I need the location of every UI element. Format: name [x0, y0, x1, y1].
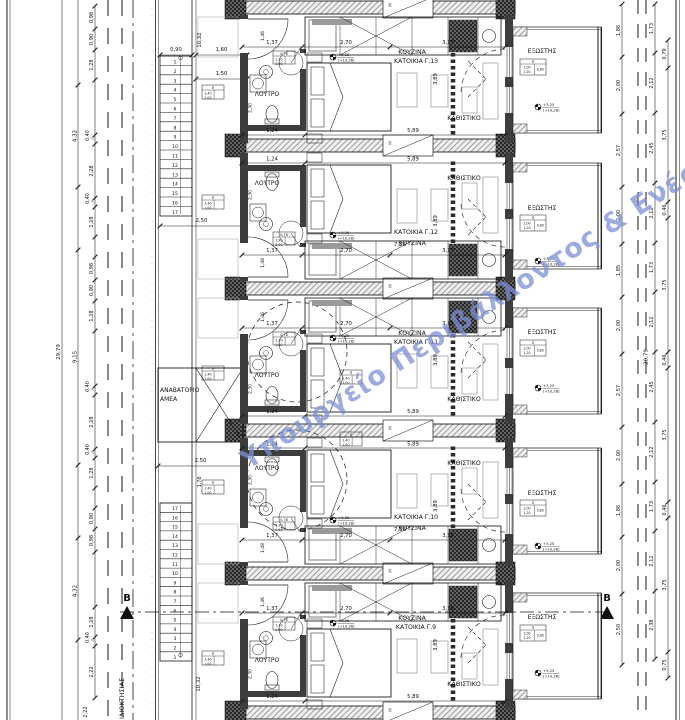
section-marker-label-left: B	[123, 593, 131, 604]
drawing-shape	[330, 450, 343, 484]
dim-label: 0,90	[275, 343, 282, 347]
dim-label: 2,30	[248, 190, 254, 200]
room-label-bath: ΛΟΥΤΡΟ	[255, 180, 280, 187]
floor-plan: 29,799,154,324,3229,790,980,901,280,402,…	[0, 0, 685, 720]
room-label-kitchen: ΚΟΥΖΙΝΑ	[398, 525, 426, 532]
kitchen-sink	[483, 254, 496, 267]
wall-right	[505, 153, 513, 281]
dim-label: 2,57	[616, 385, 622, 396]
dim-label: 1,30	[275, 58, 282, 62]
dim-label: Π	[532, 626, 535, 630]
dim-label: 2,70	[340, 606, 352, 612]
dim-label: 1,00	[204, 662, 211, 666]
dim-label: 1,20	[523, 70, 530, 74]
dim-label: 2,38	[649, 619, 655, 630]
dim-label: 2,00	[616, 320, 622, 331]
dim-label: Π	[532, 60, 535, 64]
drawing-shape	[330, 165, 343, 199]
level-value: +3,25	[543, 103, 555, 107]
stair-number: 8	[174, 125, 177, 131]
drawing-shape	[264, 70, 269, 75]
coffee-table	[462, 368, 477, 394]
nightstand	[307, 619, 322, 628]
drawing-shape	[253, 492, 264, 503]
dim-label: 0,78	[280, 333, 288, 337]
dim-label: 0,90	[275, 62, 282, 66]
drawing-shape	[513, 124, 527, 133]
dim-label: 5,89	[407, 157, 419, 163]
level-value: +3,25	[338, 334, 350, 338]
entry-landing	[198, 583, 238, 623]
dim-label: 0,78	[280, 52, 288, 56]
drawing-shape	[538, 388, 541, 391]
toilet	[266, 106, 278, 123]
stair-number: 13	[172, 543, 178, 549]
level-abs-value: (+10,28)	[543, 390, 560, 394]
lintel-label: Π	[388, 284, 391, 289]
drawing-shape	[513, 405, 527, 414]
room-label-kitchen: ΚΟΥΖΙΝΑ	[398, 49, 426, 56]
drawing-shape	[330, 484, 343, 518]
toilet	[266, 672, 278, 689]
bed	[307, 629, 391, 697]
drawing-shape	[538, 546, 541, 549]
drawing-shape	[535, 104, 538, 107]
pillow	[311, 201, 324, 229]
party-wall	[230, 706, 515, 719]
room-label-balcony: ΕΞΩΣΤΗΣ	[528, 205, 557, 212]
drawing-shape	[265, 119, 279, 124]
wall-right	[505, 15, 513, 143]
dim-label: 1,20	[523, 636, 530, 640]
dim-label: 1,85	[616, 265, 622, 276]
pillow	[311, 665, 324, 693]
dim-label: 0,80	[537, 509, 544, 513]
dim-label: 5,89	[407, 694, 419, 700]
dim-label: 3,75	[662, 279, 668, 290]
dim-label: 1,40	[342, 439, 349, 443]
stair-number: 9	[174, 580, 177, 586]
lintel-label: Π	[388, 3, 391, 8]
stair-number: 2	[174, 69, 177, 75]
lintel-label: Π	[388, 708, 391, 713]
stair-number: 11	[172, 154, 178, 160]
drawing-shape	[264, 351, 269, 356]
level-abs-value: (+10,28)	[543, 548, 560, 552]
lift-label-line1: ΑΝΑΒΑΤΟΡΙΟ	[160, 387, 200, 394]
kitchen-sink	[483, 596, 496, 609]
dim-label: 2,57	[616, 145, 622, 156]
dim-label: 1,86	[616, 25, 622, 36]
stair-number: 16	[172, 515, 178, 521]
drawing-shape	[535, 543, 538, 546]
coffee-table	[462, 87, 477, 113]
lintel-label: Π	[388, 426, 391, 431]
level-value: +3,25	[543, 384, 555, 388]
stair-number: 15	[172, 191, 178, 197]
stair-number: 11	[172, 562, 178, 568]
drawing-shape	[91, 138, 94, 140]
stair-number: 10	[172, 571, 178, 577]
dim-label: 2,30	[248, 384, 254, 394]
dim-label: 5,89	[407, 409, 419, 415]
bed	[307, 63, 391, 131]
coffee-table	[462, 183, 477, 209]
stair-number: 7	[174, 599, 177, 605]
dim-label: 2,70	[340, 40, 352, 46]
balcony	[513, 593, 601, 699]
drawing-shape	[330, 54, 333, 57]
dim-label: 1,73	[649, 23, 655, 34]
drawing-shape	[91, 201, 94, 203]
level-abs-value: (+10,28)	[543, 109, 560, 113]
dim-label: 1,28	[89, 310, 95, 321]
stair-number: 5	[174, 97, 177, 103]
drawing-shape	[333, 520, 336, 523]
stair-number: 3	[174, 78, 177, 84]
level-value: +3,25	[338, 231, 350, 235]
dim-label: 1,50	[216, 71, 228, 77]
kitchen-sink	[483, 539, 496, 552]
dim-label: 0,75	[662, 659, 668, 670]
dim-label: 1,30	[275, 624, 282, 628]
dim-label: 0,90	[275, 628, 282, 632]
nightstand	[307, 153, 322, 162]
drawing-shape	[513, 690, 527, 699]
drawing-shape	[330, 663, 343, 697]
balcony	[513, 308, 601, 414]
toilet	[266, 387, 278, 404]
drawing-shape	[513, 545, 527, 554]
drawing-shape	[240, 528, 248, 562]
dim-label: 1,20	[523, 351, 530, 355]
wall-right	[505, 581, 513, 709]
stair-number: 9	[174, 135, 177, 141]
dim-label: 2,50	[195, 458, 207, 464]
dim-label: 10,32	[196, 676, 202, 691]
drawing-shape	[248, 165, 306, 171]
stair-number: 16	[172, 201, 178, 207]
drawing-shape	[535, 385, 538, 388]
dim-label: 2,00	[523, 632, 530, 636]
dim-label: 2,50	[196, 218, 208, 224]
dim-label: Π	[212, 367, 215, 371]
dim-label: 1,40	[204, 487, 211, 491]
lintel-label: Π	[388, 569, 391, 574]
sofa	[483, 629, 498, 685]
level-value: +3,25	[543, 669, 555, 673]
dim-label: 1,20	[523, 226, 530, 230]
dim-label: 9,15	[73, 350, 79, 363]
level-abs-value: (+10,28)	[338, 237, 355, 241]
bed	[307, 165, 391, 233]
level-value: +3,25	[338, 619, 350, 623]
dim-label: 2,12	[649, 77, 655, 88]
dim-label: 1,73	[649, 262, 655, 273]
drawing-shape	[513, 27, 527, 36]
dim-label: 2,30	[248, 475, 254, 485]
entry-landing	[198, 524, 238, 564]
dim-label: 0,40	[85, 444, 91, 455]
dim-label: 1,46	[260, 312, 266, 322]
dim-label: 2,70	[340, 248, 352, 254]
sofa	[483, 344, 498, 400]
drawing-shape	[253, 644, 264, 655]
level-abs-value: (+10,28)	[338, 340, 355, 344]
balcony	[513, 448, 601, 554]
drawing-shape	[265, 685, 279, 690]
dim-label: 0,80	[537, 68, 544, 72]
drawing-shape	[330, 620, 333, 623]
dim-label: 0,90	[89, 285, 95, 296]
dim-label: 2,00	[616, 80, 622, 91]
drawing-shape	[513, 593, 527, 602]
dim-label: 1,40	[204, 373, 211, 377]
dim-label: 3,19	[442, 533, 454, 539]
dim-label: 3,19	[442, 606, 454, 612]
room-label-living: ΚΑΘΙΣΤΙΚΟ	[447, 115, 481, 122]
stair-number: 12	[172, 553, 178, 559]
dim-label: 2,70	[340, 321, 352, 327]
drawing-shape	[264, 636, 269, 641]
table	[397, 189, 417, 223]
lift-label-line2: ΑΜΕΑ	[160, 396, 178, 403]
dim-label: 2,00	[523, 347, 530, 351]
dim-label: 1,46	[260, 597, 266, 607]
dim-label: Π	[212, 86, 215, 90]
party-wall	[230, 567, 515, 580]
unit-label: ΚΑΤΟΙΚΙΑ Γ.13	[394, 58, 438, 65]
drawing-shape	[330, 199, 343, 233]
dim-label: 0,78	[280, 518, 288, 522]
level-value: +3,25	[338, 53, 350, 57]
dim-label: 0,90	[170, 47, 182, 53]
dim-label: 0,90	[275, 528, 282, 532]
unit-label: ΚΑΤΟΙΚΙΑ Γ.12	[394, 229, 438, 236]
dim-label: 1,30	[275, 339, 282, 343]
dim-label: 0,80	[537, 634, 544, 638]
drawing-shape	[333, 235, 336, 238]
stair-number: 5	[174, 618, 177, 624]
dim-label: 3,89	[433, 639, 439, 651]
dim-label: 1,37	[266, 606, 278, 612]
dim-label: 0,46	[662, 354, 668, 365]
stair-number: 17	[172, 210, 178, 216]
dim-label: 3,75	[662, 579, 668, 590]
stair-number: 8	[174, 590, 177, 596]
dim-label: 1,24	[266, 157, 278, 163]
dim-label: 1,40	[204, 202, 211, 206]
drawing-shape	[513, 163, 527, 172]
dim-label: 4,32	[73, 130, 79, 142]
pillow	[311, 99, 324, 127]
lintel-label: Π	[388, 141, 391, 146]
dim-label: 1,48	[260, 258, 266, 268]
pillow	[311, 454, 324, 482]
drawing-shape	[330, 97, 343, 131]
dim-label: 1,37	[266, 248, 278, 254]
dim-label: 1,73	[649, 501, 655, 512]
dim-label: 1,00	[204, 377, 211, 381]
party-wall	[230, 139, 515, 152]
drawing-shape	[513, 448, 527, 457]
dim-label: 1,46	[260, 31, 266, 41]
table	[397, 474, 417, 508]
overall-dim: 29,79	[644, 349, 650, 365]
dim-label: 1,20	[523, 511, 530, 515]
dim-label: 0,78	[280, 618, 288, 622]
dim-label: 3,19	[442, 248, 454, 254]
dim-label: 0,98	[89, 535, 95, 546]
dim-label: Π	[532, 341, 535, 345]
dim-label: 2,12	[649, 446, 655, 457]
dim-label: 1,00	[204, 206, 211, 210]
drawing-shape	[91, 389, 94, 391]
sofa	[483, 63, 498, 119]
dim-label: 0,80	[537, 349, 544, 353]
drawing-shape	[513, 308, 527, 317]
dim-label: 1,00	[342, 443, 349, 447]
dim-label: Π	[212, 481, 215, 485]
room-label-balcony: ΕΞΩΣΤΗΣ	[528, 614, 557, 621]
dim-label: 2,28	[89, 165, 95, 176]
stair-number: 13	[172, 172, 178, 178]
room-label-balcony: ΕΞΩΣΤΗΣ	[528, 490, 557, 497]
kitchen-sink	[483, 30, 496, 43]
dim-label: 1,30	[275, 239, 282, 243]
drawing-shape	[538, 107, 541, 110]
room-label-balcony: ΕΞΩΣΤΗΣ	[528, 329, 557, 336]
dim-label: 5,89	[407, 442, 419, 448]
dim-label: 0,79	[662, 48, 668, 59]
wall-right	[505, 296, 513, 424]
drawing-shape	[330, 629, 343, 663]
dim-label: 1,37	[266, 40, 278, 46]
room-label-bath: ΛΟΥΤΡΟ	[255, 372, 280, 379]
drawing-shape	[253, 78, 264, 89]
section-marker-label-right: B	[603, 593, 611, 604]
dim-label: 1,40	[204, 92, 211, 96]
dim-label: 0,40	[85, 381, 91, 392]
dim-label: 2,70	[340, 533, 352, 539]
dim-label: 1,24	[266, 694, 278, 700]
stair-number: 12	[172, 163, 178, 169]
dim-label: 0,40	[85, 632, 91, 643]
room-label-balcony: ΕΞΩΣΤΗΣ	[528, 48, 557, 55]
stair-number: 10	[172, 144, 178, 150]
level-value: +3,25	[338, 516, 350, 520]
pillow	[311, 348, 324, 376]
drawing-shape	[240, 243, 248, 277]
drawing-shape	[330, 335, 333, 338]
dim-label: 0,90	[89, 34, 95, 45]
drawing-shape	[330, 344, 343, 378]
floor-plan-sheet: { "watermark": {"text": "Υπουργείο Περιβ…	[0, 0, 685, 720]
dim-label: 2,12	[649, 555, 655, 566]
overall-dim: 29,79	[56, 344, 62, 360]
dim-label: 2,28	[89, 416, 95, 427]
dim-label: 1,86	[616, 505, 622, 516]
stair-number: 1	[174, 60, 177, 66]
dim-label: 3,19	[442, 40, 454, 46]
drawing-shape	[333, 623, 336, 626]
dim-label: 0,98	[89, 263, 95, 274]
dim-label: 1,28	[89, 59, 95, 70]
room-label-bath: ΛΟΥΤΡΟ	[255, 657, 280, 664]
dim-label: 2,22	[83, 706, 89, 717]
dim-label: Π	[212, 652, 215, 656]
section-arrow-right	[600, 606, 614, 619]
dim-label: 3,89	[433, 500, 439, 512]
stair-number: 6	[174, 608, 177, 614]
stair-number: 2	[174, 646, 177, 652]
stair-number: 1	[174, 655, 177, 661]
level-value: +3,25	[543, 542, 555, 546]
dim-label: 3,89	[433, 73, 439, 85]
level-abs-value: (+10,28)	[338, 522, 355, 526]
pillow	[311, 633, 324, 661]
room-label-living: ΚΑΘΙΣΤΙΚΟ	[447, 681, 481, 688]
stair-number: 14	[172, 182, 178, 188]
dim-label: Π	[532, 501, 535, 505]
table	[397, 73, 417, 107]
drawing-shape	[265, 172, 279, 177]
stair-number: 7	[174, 116, 177, 122]
dim-label: 2,30	[248, 669, 254, 679]
drawing-shape	[330, 63, 343, 97]
dim-label: 1,24	[266, 409, 278, 415]
section-arrow-left	[120, 606, 134, 619]
dim-label: 2,45	[649, 142, 655, 153]
dim-label: 3,75	[662, 129, 668, 140]
nightstand	[307, 53, 322, 62]
nightstand	[307, 519, 322, 528]
dim-label: 1,28	[89, 616, 95, 627]
bed	[307, 450, 391, 518]
dim-label: 1,37	[266, 533, 278, 539]
dim-label: 1,30	[275, 524, 282, 528]
dim-label: 3,75	[662, 429, 668, 440]
unit-label: ΚΑΤΟΙΚΙΑ Γ.9	[396, 624, 436, 631]
dim-label: 2,12	[649, 316, 655, 327]
drawing-shape	[333, 57, 336, 60]
dim-label: 0,78	[280, 233, 288, 237]
dim-label: Π	[532, 216, 535, 220]
drawing-shape	[91, 640, 94, 642]
dim-label: 1,48	[260, 543, 266, 553]
dim-label: 2,00	[616, 450, 622, 461]
drawing-shape	[265, 400, 279, 405]
dim-label: 1,00	[204, 96, 211, 100]
level-abs-value: (+10,28)	[543, 675, 560, 679]
drawing-shape	[253, 207, 264, 218]
dim-label: 1,24	[266, 128, 278, 134]
nightstand	[307, 438, 322, 447]
nightstand	[307, 334, 322, 343]
pillow	[311, 486, 324, 514]
dim-label: 4,32	[73, 585, 79, 597]
room-label-living: ΚΑΘΙΣΤΙΚΟ	[447, 175, 481, 182]
dim-label: 2,30	[248, 103, 254, 113]
dim-label: 2,00	[523, 222, 530, 226]
sofa	[483, 177, 498, 233]
level-abs-value: (+10,28)	[338, 59, 355, 63]
entry-landing	[198, 298, 238, 338]
stair-number: 4	[174, 627, 177, 633]
unit-label: ΚΑΤΟΙΚΙΑ Γ.10	[394, 514, 438, 521]
dim-label: 0,40	[85, 193, 91, 204]
room-label-bath: ΛΟΥΤΡΟ	[255, 91, 280, 98]
